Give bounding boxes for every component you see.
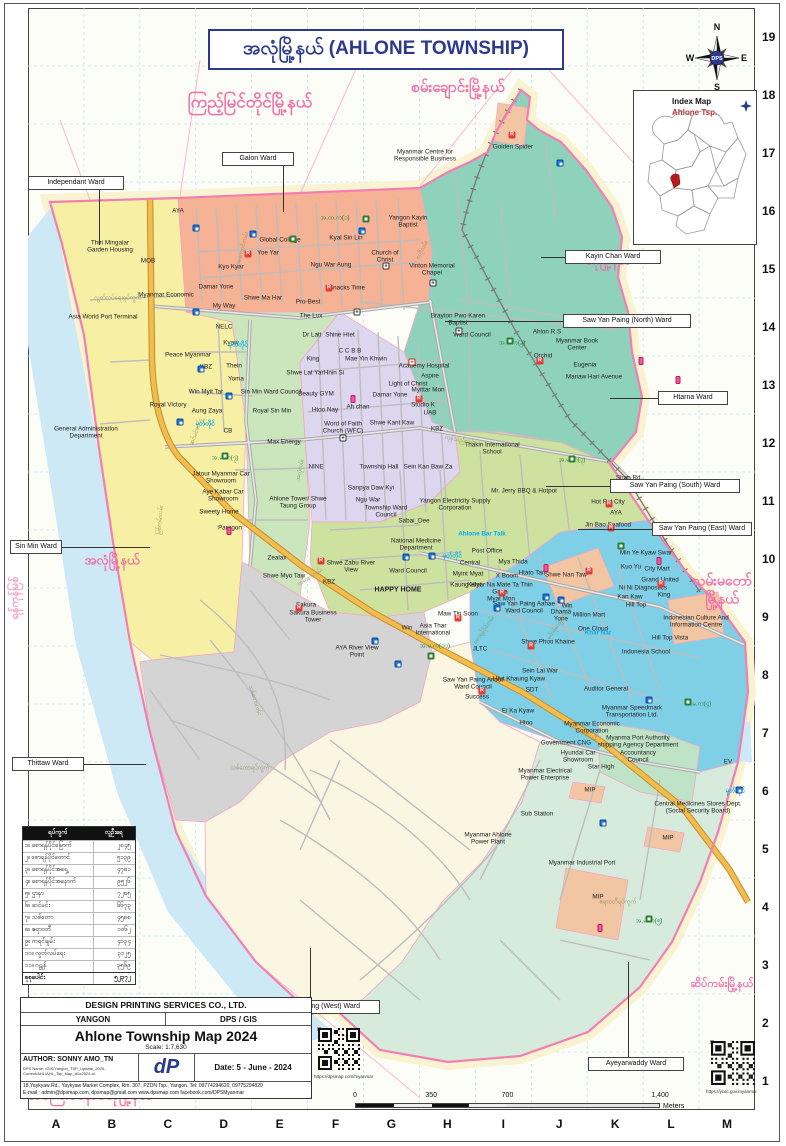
poi-label: Myittar Mon <box>412 388 445 395</box>
poi-label: Khar Nar <box>585 631 612 638</box>
grid-row-number: 14 <box>762 320 775 334</box>
poi-label: MIP <box>662 836 673 843</box>
poi-label: Sabai_Dee <box>398 519 429 526</box>
callout-leader-line <box>62 547 150 548</box>
poi-label: KBZ <box>323 580 335 587</box>
poi-label: Sakura Business Tower <box>287 610 339 623</box>
poi-label: Ahlone Tower/ Shwe Taung Group <box>268 496 328 509</box>
legend-population: ၉၅၂၆ <box>93 877 135 888</box>
restaurant-icon: R <box>608 525 615 532</box>
qr-code-dpsmap <box>317 1027 321 1031</box>
compass-rose: DPS N E S W <box>686 24 748 90</box>
poi-label: Post Office <box>472 549 503 556</box>
poi-label: Mr. Jerry BBQ & Hotpot <box>491 489 557 496</box>
poi-label: Golden Spider <box>493 145 533 152</box>
poi-label: Accountancy Council <box>612 750 664 763</box>
poi-label: Hill Top <box>626 603 647 610</box>
restaurant-icon: R <box>537 358 544 365</box>
callout-leader-line <box>578 529 652 530</box>
grid-row-number: 10 <box>762 552 775 566</box>
legend-ward-name: ၆။ ဆင်မင်း <box>23 901 93 912</box>
grid-row-number: 19 <box>762 30 775 44</box>
poi-label: Shwe Lat Yar <box>286 371 323 378</box>
legend-ward-name: စုစုပေါင်း <box>23 973 93 984</box>
bus-stop-icon <box>177 419 184 426</box>
bus-stop-icon <box>226 393 233 400</box>
grid-column-letter: J <box>556 1117 563 1131</box>
school-icon <box>428 653 435 660</box>
poi-label: NINE <box>308 465 323 472</box>
poi-label: X Boom <box>496 574 518 581</box>
legend-row: ၂။ စောရန်ပိုင်တောင်၅၁၃၉ <box>23 852 135 864</box>
info-scale: Scale: 1:7,630 <box>21 1044 311 1053</box>
poi-label: Saw Yan Paing Anout Ward Council <box>438 677 508 690</box>
bus-stop-icon <box>359 228 366 235</box>
poi-label: Indonesia School <box>622 650 670 657</box>
poi-label: Win <box>402 626 413 633</box>
map-page: Golden SpiderMyanmar Centre for Responsi… <box>0 0 786 1146</box>
poi-label: Star High <box>588 765 614 772</box>
church-icon: + <box>430 280 437 287</box>
poi-label: HAPPY HOME <box>375 586 422 593</box>
poi-label: Dhama Yone <box>543 609 579 622</box>
grid-column-letter: D <box>219 1117 228 1131</box>
poi-label: Myanmar Book Center <box>548 338 606 351</box>
poi-label: Mya Thida <box>498 560 527 567</box>
street-label: ဗဟိုလမ်း <box>413 239 430 261</box>
qr-pattern <box>318 1028 360 1070</box>
poi-label: Kan Kaw <box>617 595 642 602</box>
legend-row: ၇။ သစ်တော၄၅၈၈ <box>23 912 135 924</box>
poi-label: EV <box>724 760 732 767</box>
grid-row-number: 8 <box>762 668 769 682</box>
legend-row: ၄။ စောရန်ပိုင်အနောက်၉၅၂၆ <box>23 876 135 888</box>
poi-label: အ.မ.က(၁၁) <box>420 644 450 651</box>
restaurant-icon: R <box>586 568 593 575</box>
legend-population: ၆၆၇၃ <box>93 901 135 912</box>
poi-label: Sanpya Daw Kyi <box>348 486 394 493</box>
poi-label: Myanmar Economic Corporation <box>561 721 623 734</box>
street-label: စောရန်ပိုင်လမ်း <box>471 614 497 646</box>
restaurant-icon: R <box>509 132 516 139</box>
restaurant-icon: R <box>479 688 486 695</box>
callout-leader-line <box>546 486 610 487</box>
legend-row: ၃။ စောရန်ပိုင်အရှေ့၄၇၈၁ <box>23 864 135 876</box>
poi-label: Ah chan <box>346 405 369 412</box>
poi-label: Mae Yin Khwin <box>345 357 387 364</box>
street-label: ကမ်းနားလမ်း <box>571 721 600 744</box>
callout-leader-line <box>628 962 629 1057</box>
grid-column-letter: F <box>332 1117 339 1131</box>
grid-row-number: 7 <box>762 726 769 740</box>
scale-segment <box>507 1104 659 1107</box>
info-map-title-row: Ahlone Township Map 2024 Scale: 1:7,630 <box>21 1026 311 1054</box>
poi-label: Myanmar Speedmark Transportation Ltd. <box>590 705 674 718</box>
poi-label: General Administration Department <box>53 426 119 439</box>
poi-label: JLTC <box>473 647 488 654</box>
street-label: မင်းရဲကျော်စွာလမ်း <box>545 603 576 641</box>
grid-row-number: 11 <box>762 494 775 508</box>
legend-row: ၆။ ဆင်မင်း၆၆၇၃ <box>23 900 135 912</box>
legend-header: ရပ်ကွက် လူဦးရေ <box>23 827 135 840</box>
poi-label: အ.ထ.က(၁) <box>320 216 349 223</box>
grid-row-number: 1 <box>762 1074 769 1088</box>
compass-n-label: N <box>714 22 721 32</box>
legend-population: ၂၈၄၅ <box>93 841 135 852</box>
poi-label: Myint Myat <box>453 572 483 579</box>
school-icon <box>290 236 297 243</box>
bus-stop-icon <box>600 820 607 827</box>
church-icon: + <box>354 309 361 316</box>
poi-label: Success <box>465 695 489 702</box>
poi-label: Township Ward Council <box>360 505 412 518</box>
page-title-text: အလုံမြို့နယ် (AHLONE TOWNSHIP) <box>243 36 529 64</box>
qr-pattern <box>711 1041 755 1085</box>
poi-label: Royal Victory <box>150 403 187 410</box>
poi-label: Htoo <box>519 721 532 728</box>
info-dept: DPS / GIS <box>166 1013 311 1025</box>
restaurant-icon: R <box>606 501 613 508</box>
street-label: မြစ်ကမ်းလမ်း <box>154 505 166 535</box>
info-author-cell: AUTHOR: SONNY AMO_TN DPS Name: /GIS/Yang… <box>21 1054 139 1081</box>
restaurant-icon: R <box>318 558 325 565</box>
poi-label: AYA River View Point <box>328 645 386 658</box>
neighbor-township-label: ရန်ကုန်မြစ် <box>8 577 24 620</box>
poi-label: Ngu War Aung <box>311 263 352 270</box>
neighbor-township-label: ကြည့်မြင်တိုင်မြို့နယ် <box>188 92 312 117</box>
compass-e-label: E <box>741 53 747 63</box>
scale-bar: Meters <box>355 1092 685 1116</box>
bus-stop-icon <box>198 366 205 373</box>
bus-stop-icon <box>429 553 436 560</box>
callout-leader-line <box>541 257 565 258</box>
poi-label: Aung Zaya <box>192 409 222 416</box>
poi-label: Indonesian Culture And Information Centr… <box>659 615 733 628</box>
poi-label: Damar Yone <box>373 393 408 400</box>
restaurant-icon: R <box>326 285 333 292</box>
poi-label: Auditor General <box>584 687 628 694</box>
fuel-icon <box>227 527 232 535</box>
poi-label: MIP <box>592 895 603 902</box>
poi-label: MOB <box>141 259 155 266</box>
legend-ward-name: ၂။ စောရန်ပိုင်တောင် <box>23 853 93 864</box>
bus-stop-icon <box>395 661 402 668</box>
poi-label: Myanma Port Authority shipping Agency De… <box>594 735 682 748</box>
grid-row-number: 3 <box>762 958 769 972</box>
street-label: ဧရာဝတီရပ်ကွက် <box>599 898 636 907</box>
bus-stop-icon <box>193 225 200 232</box>
fuel-icon <box>351 395 356 403</box>
compass-w-label: W <box>686 53 695 63</box>
grid-column-letter: I <box>502 1117 505 1131</box>
legend-row: ၉။ ကရင်ချမ်း၄၁၃၄ <box>23 936 135 948</box>
bus-stop-icon <box>543 594 550 601</box>
poi-label: Thakin International School <box>460 442 524 455</box>
restaurant-icon: R <box>296 605 303 612</box>
callout-leader-line <box>310 948 311 1000</box>
ward-callout: Ayeyarwaddy Ward <box>588 1057 684 1071</box>
index-map: Index Map Ahlone Tsp. <box>633 90 757 245</box>
poi-label: Thein <box>226 364 242 371</box>
scale-bar-segments <box>355 1103 660 1108</box>
poi-label: Sweety Home <box>199 510 238 517</box>
poi-label: Myat Mon <box>487 597 515 604</box>
poi-label: Shwe Nan Taw <box>545 573 587 580</box>
dps-logo: dP <box>139 1054 195 1081</box>
restaurant-icon: R <box>499 590 506 597</box>
fuel-icon <box>544 564 549 572</box>
poi-label: Aye Kabar Car Showroom <box>195 489 251 502</box>
poi-label: Jatour Myanmar Car Showroom <box>190 471 252 484</box>
poi-label: AYA <box>610 511 622 518</box>
poi-label: Central <box>460 561 480 568</box>
poi-label: Shwe Zabu River View <box>325 560 377 573</box>
grid-row-number: 2 <box>762 1016 769 1030</box>
street-label: သစ်တောရပ်ကွက် <box>230 764 269 773</box>
legend-row: ၁၀။ လွတ်လပ်ရေး၃၁၂၅ <box>23 948 135 960</box>
poi-label: City Mart <box>644 567 669 574</box>
legend-ward-name: ၉။ ကရင်ချမ်း <box>23 937 93 948</box>
legend-row: ၁။ စောရန်ပိုင်မြောက်၂၈၄၅ <box>23 840 135 852</box>
poi-label: Studio K <box>411 403 435 410</box>
poi-label: Win Myit Tar <box>189 390 224 397</box>
poi-label: Myanmar Economic <box>138 293 194 300</box>
school-icon <box>222 453 229 460</box>
info-city: YANGON <box>21 1013 166 1025</box>
info-file-ref: DPS Name: /GIS/Yangon_TSP_Update_2025-Co… <box>23 1066 136 1076</box>
poi-label: The Lux <box>300 314 323 321</box>
church-icon: + <box>383 263 390 270</box>
grid-row-number: 6 <box>762 784 769 798</box>
poi-label: Kaung Htet <box>450 583 482 590</box>
info-box: DESIGN PRINTING SERVICES CO., LTD. YANGO… <box>20 997 312 1099</box>
neighbor-township-label: မြို့နယ် <box>705 590 738 611</box>
poi-label: Academy Hospital <box>399 364 450 371</box>
scale-unit-label: Meters <box>663 1103 684 1110</box>
poi-label: မှတ်တိုင် <box>442 554 461 561</box>
poi-label: Hyundai Car Showroom <box>551 750 605 763</box>
poi-label: My Way <box>213 304 236 311</box>
legend-ward-name: ၁၁။ ဂဠုန် <box>23 961 93 972</box>
legend-population: ၁၀၆၂ <box>93 925 135 936</box>
street-label: ကုန်သည်လမ်း <box>444 433 476 447</box>
info-author: AUTHOR: SONNY AMO_TN <box>23 1056 113 1063</box>
poi-label: Sein Lai War <box>522 669 558 676</box>
grid-row-number: 17 <box>762 146 775 160</box>
grid-row-number: 18 <box>762 88 775 102</box>
poi-label: Shwe Kant Kaw <box>370 421 414 428</box>
legend-population: ၄၇၈၁ <box>93 865 135 876</box>
grid-row-number: 4 <box>762 900 769 914</box>
info-address: 18,Yaykyaw Rd., Yaykyaw Market Complex, … <box>21 1082 311 1090</box>
ward-callout: Saw Yan Paing (East) Ward <box>652 522 752 536</box>
legend-population: ၃၁၂၅ <box>93 949 135 960</box>
bus-stop-icon <box>646 697 653 704</box>
scale-segment <box>356 1104 394 1107</box>
poi-label: Township Hall <box>360 465 399 472</box>
restaurant-icon: R <box>455 615 462 622</box>
info-author-row: AUTHOR: SONNY AMO_TN DPS Name: /GIS/Yang… <box>21 1054 311 1082</box>
ward-callout: Sin Min Ward <box>10 540 62 554</box>
poi-label: National Medicine Department <box>374 538 458 551</box>
qr-right-caption: https://ycdc.gov.myanmar <box>706 1089 757 1094</box>
poi-label: Ahlon R.S <box>533 330 561 337</box>
poi-label: Asia World Port Terminal <box>68 315 137 322</box>
poi-label: Government CNG <box>541 741 591 748</box>
callout-leader-line <box>445 321 563 322</box>
poi-label: Kyaw <box>223 341 238 348</box>
poi-label: Myanmar Industrial Port <box>549 861 616 868</box>
legend-row: ၅။ ဌာနာ၇၂၈၅ <box>23 888 135 900</box>
ward-callout: Htarna Ward <box>658 391 728 405</box>
bus-stop-icon <box>557 160 564 167</box>
neighbor-township-label: အလုံမြို့နယ် <box>84 553 139 572</box>
restaurant-icon: R <box>528 643 535 650</box>
poi-label: Sin Min Ward Council <box>241 390 301 397</box>
poi-label: Min Ye Kyaw Swar <box>620 551 672 558</box>
school-icon <box>507 338 514 345</box>
callout-leader-line <box>610 398 658 399</box>
poi-label: Yangon Electricity Supply Corporation <box>419 498 491 511</box>
grid-row-number: 16 <box>762 204 775 218</box>
school-icon <box>569 456 576 463</box>
bus-stop-icon <box>736 787 743 794</box>
poi-label: Royal Sin Min <box>253 409 292 416</box>
poi-label: King <box>307 357 320 364</box>
bus-stop-icon <box>372 638 379 645</box>
poi-label: Thiri Mingalar Garden Housing <box>80 240 140 253</box>
index-map-ahlone-highlight <box>671 174 680 188</box>
page-title: အလုံမြို့နယ် (AHLONE TOWNSHIP) <box>208 29 564 70</box>
bus-stop-icon <box>403 554 410 561</box>
neighbor-township-label: စမ်းချောင်းမြို့နယ် <box>411 78 504 100</box>
grid-row-number: 13 <box>762 378 775 392</box>
grid-column-letter: E <box>276 1117 284 1131</box>
poi-label: Zealax <box>268 556 287 563</box>
grid-column-letter: K <box>611 1117 620 1131</box>
grid-column-letter: C <box>163 1117 172 1131</box>
legend-population: ၄၁၃၄ <box>93 937 135 948</box>
fuel-icon <box>639 357 644 365</box>
poi-label: Myanmar Electrical Power Enterprise <box>511 768 579 781</box>
legend-ward-name: ၁။ စောရန်ပိုင်မြောက် <box>23 841 93 852</box>
compass-center-label: DPS <box>711 56 723 62</box>
poi-label: Beauty GYM <box>298 392 334 399</box>
fuel-icon <box>598 924 603 932</box>
callout-leader-line <box>283 166 284 212</box>
street-label: အလုံလမ်း <box>293 458 306 481</box>
legend-row: ၈။ ဧရာဝတီ၁၀၆၂ <box>23 924 135 936</box>
callout-leader-line <box>99 190 100 245</box>
legend-population: ၄၅၈၈ <box>93 913 135 924</box>
church-icon: + <box>340 435 347 442</box>
poi-label: Myanmar Centre for Responsible Business <box>393 149 457 162</box>
poi-label: CB <box>224 429 233 436</box>
qr-code-ycdc <box>710 1040 714 1044</box>
grid-row-number: 12 <box>762 436 775 450</box>
poi-label: Light of Christ <box>389 382 428 389</box>
poi-label: Central Medicines Stores Dept. (Social S… <box>654 801 742 814</box>
scale-segment <box>394 1104 432 1107</box>
ward-callout: Galon Ward <box>222 152 294 166</box>
church-icon: + <box>456 328 463 335</box>
school-icon <box>685 699 692 706</box>
poi-label: Million Mart <box>573 613 605 620</box>
poi-label: Snacks Time <box>329 286 365 293</box>
poi-label: Shine Htet <box>325 333 354 340</box>
compass-star-icon: DPS <box>686 24 748 90</box>
bus-stop-icon <box>193 309 200 316</box>
grid-column-letter: B <box>108 1117 117 1131</box>
ward-callout: Kayin Chan Ward <box>565 250 661 264</box>
bus-stop-icon <box>250 231 257 238</box>
fuel-icon <box>676 376 681 384</box>
poi-label: Hill Top Vista <box>652 636 688 643</box>
index-map-sketch <box>634 94 756 244</box>
poi-label: Ngu War <box>356 498 381 505</box>
restaurant-icon: R <box>245 251 252 258</box>
poi-label: Pro-Best <box>296 300 321 307</box>
poi-label: မှတ်တိုင် <box>228 343 247 350</box>
bus-stop-icon <box>558 597 565 604</box>
legend-row: ၁၁။ ဂဠုန်၃၅၆၉ <box>23 960 135 972</box>
poi-label: NELC <box>216 325 233 332</box>
legend-population: ၇၂၈၅ <box>93 889 135 900</box>
poi-label: Htato Tan <box>519 571 546 578</box>
info-map-title: Ahlone Township Map 2024 <box>21 1026 311 1044</box>
info-city-dept: YANGON DPS / GIS <box>21 1013 311 1026</box>
street-label: လွတ်လပ်ရေးရပ်ကွက် <box>94 294 141 303</box>
poi-label: Myanmar Ahlone Power Plant <box>458 832 518 845</box>
legend-ward-name: ၃။ စောရန်ပိုင်အရှေ့ <box>23 865 93 876</box>
legend-header-population: လူဦးရေ <box>93 829 135 838</box>
poi-label: Hnin Si <box>324 371 344 378</box>
poi-label: Sub Station <box>521 812 554 819</box>
grid-row-number: 15 <box>762 262 775 276</box>
poi-label: One Cloud <box>578 627 608 634</box>
restaurant-icon: R <box>658 581 665 588</box>
grid-column-letter: A <box>52 1117 61 1131</box>
poi-label: Damar Yone <box>199 285 234 292</box>
poi-label: Ahlone Bar Talk <box>458 532 505 539</box>
school-icon <box>363 216 370 223</box>
ward-callout: Saw Yan Paing (North) Ward <box>563 314 691 328</box>
grid-column-letter: G <box>387 1117 396 1131</box>
legend-rows: ၁။ စောရန်ပိုင်မြောက်၂၈၄၅၂။ စောရန်ပိုင်တေ… <box>23 840 135 984</box>
poi-label: KBZ <box>431 427 443 434</box>
poi-label: Asia Thar International <box>407 623 459 636</box>
info-email: E-mail : admin@dpsmap.com, dpsmap@gmail.… <box>21 1090 311 1098</box>
bus-stop-icon <box>494 605 501 612</box>
poi-label: Dr Latt <box>303 333 322 340</box>
legend-header-ward: ရပ်ကွက် <box>23 829 93 838</box>
street-label: ဆင်မင်းလမ်း <box>187 417 205 446</box>
poi-label: Brayton Pwo Karen Baptist <box>430 313 486 326</box>
scale-segment <box>432 1104 470 1107</box>
info-date: Date: 5 - June - 2024 <box>195 1061 311 1074</box>
street-label: ကမ်းနားလမ်း <box>296 565 325 588</box>
grid-row-number: 9 <box>762 610 769 624</box>
poi-label: Manaw Hari Avenue <box>566 375 622 382</box>
ward-callout: Saw Yan Paing (South) Ward <box>610 479 740 493</box>
poi-label: Sein Kan Baw Za <box>404 465 453 472</box>
restaurant-icon: R <box>416 396 423 403</box>
poi-label: Kyal Sin Lin <box>329 236 362 243</box>
poi-label: C C B B <box>339 349 362 356</box>
neighbor-township-label: လမ်းမတော် <box>692 572 752 593</box>
qr-left-caption: https://dpsmap.com/myanmar <box>314 1074 373 1079</box>
street-label: သစ်တောလမ်း <box>246 684 264 717</box>
